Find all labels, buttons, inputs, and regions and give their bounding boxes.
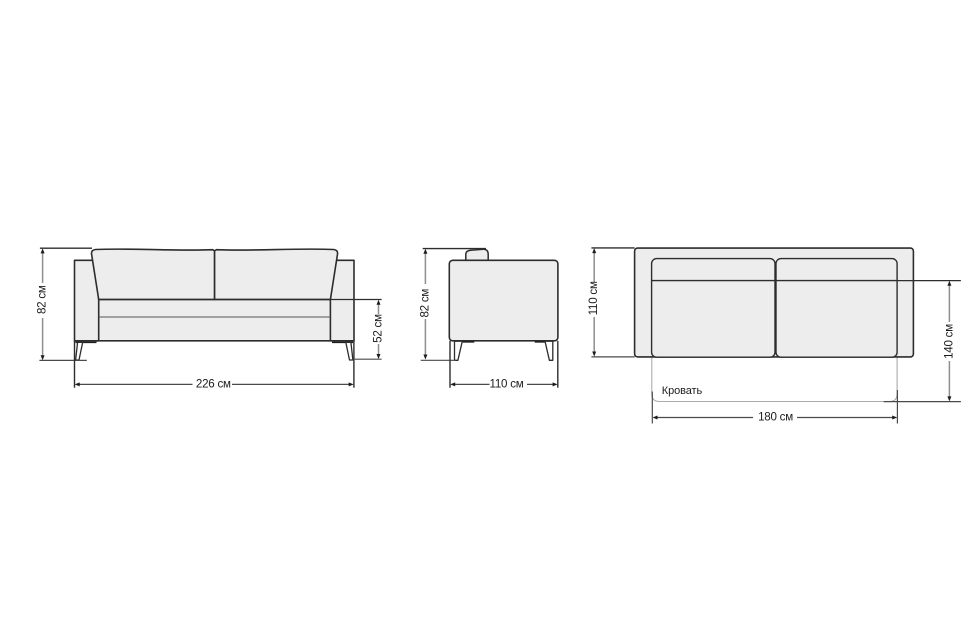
svg-text:140 см: 140 см (942, 324, 955, 359)
svg-text:52 см: 52 см (371, 314, 384, 343)
svg-text:110 см: 110 см (587, 281, 600, 315)
svg-text:226 см: 226 см (196, 377, 231, 390)
svg-text:110 см: 110 см (490, 377, 524, 390)
svg-text:82 см: 82 см (36, 285, 49, 314)
svg-text:82 см: 82 см (418, 289, 431, 318)
svg-text:Кровать: Кровать (662, 385, 703, 397)
svg-text:180 см: 180 см (758, 410, 793, 423)
